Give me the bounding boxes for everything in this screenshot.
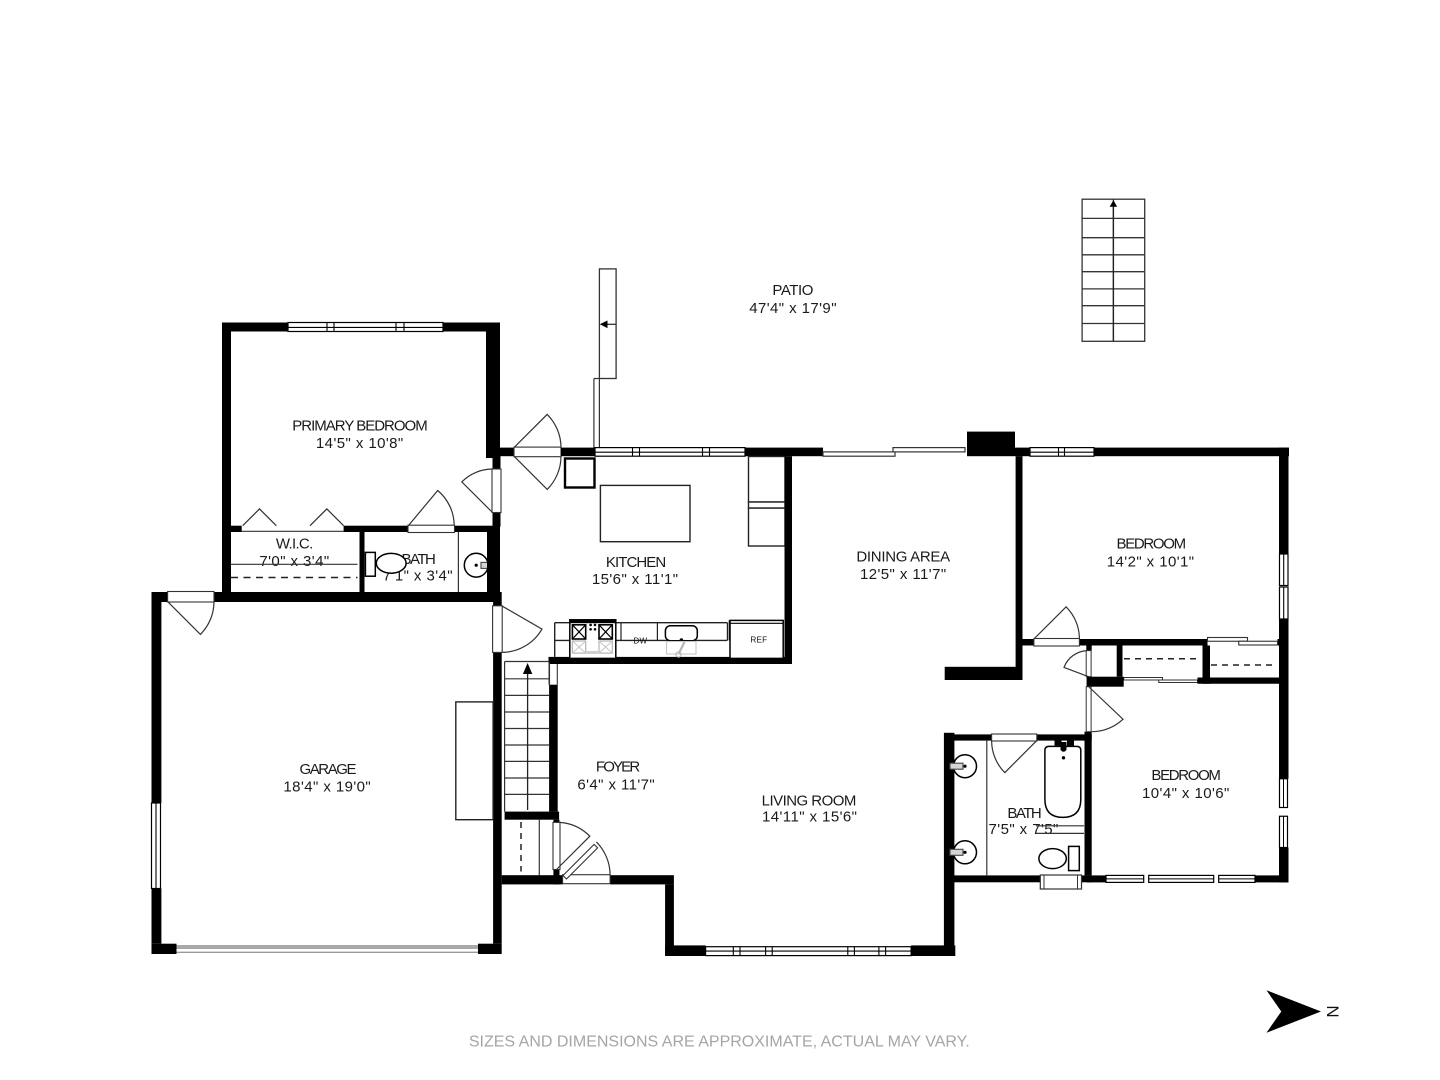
svg-text:7'5" x 7'5": 7'5" x 7'5" (989, 821, 1059, 838)
svg-text:REF: REF (750, 636, 767, 645)
svg-text:LIVING ROOM: LIVING ROOM (762, 792, 856, 809)
svg-text:PRIMARY BEDROOM: PRIMARY BEDROOM (292, 418, 427, 435)
svg-text:47'4" x 17'9": 47'4" x 17'9" (749, 300, 837, 317)
svg-text:N: N (1323, 1005, 1342, 1017)
svg-text:18'4" x 19'0": 18'4" x 19'0" (283, 779, 371, 796)
svg-text:6'4" x 11'7": 6'4" x 11'7" (577, 776, 655, 793)
svg-text:SIZES AND DIMENSIONS ARE APPRO: SIZES AND DIMENSIONS ARE APPROXIMATE, AC… (469, 1034, 970, 1051)
svg-text:BEDROOM: BEDROOM (1117, 536, 1186, 553)
svg-text:PATIO: PATIO (772, 282, 813, 299)
svg-text:14'11" x 15'6": 14'11" x 15'6" (762, 808, 857, 825)
svg-text:BATH: BATH (1007, 805, 1041, 822)
svg-text:KITCHEN: KITCHEN (606, 554, 665, 571)
svg-text:14'5" x 10'8": 14'5" x 10'8" (316, 435, 404, 452)
svg-text:GARAGE: GARAGE (299, 761, 356, 778)
svg-text:DINING AREA: DINING AREA (856, 549, 950, 566)
svg-text:W.I.C.: W.I.C. (276, 535, 313, 552)
svg-text:10'4" x 10'6": 10'4" x 10'6" (1142, 785, 1230, 802)
svg-text:DW: DW (634, 636, 648, 645)
svg-text:BEDROOM: BEDROOM (1151, 767, 1220, 784)
svg-text:15'6" x 11'1": 15'6" x 11'1" (592, 571, 679, 588)
svg-text:14'2" x 10'1": 14'2" x 10'1" (1107, 553, 1195, 570)
svg-text:FOYER: FOYER (596, 758, 640, 775)
svg-text:7'0" x 3'4": 7'0" x 3'4" (259, 553, 329, 570)
svg-text:12'5" x 11'7": 12'5" x 11'7" (860, 566, 947, 583)
